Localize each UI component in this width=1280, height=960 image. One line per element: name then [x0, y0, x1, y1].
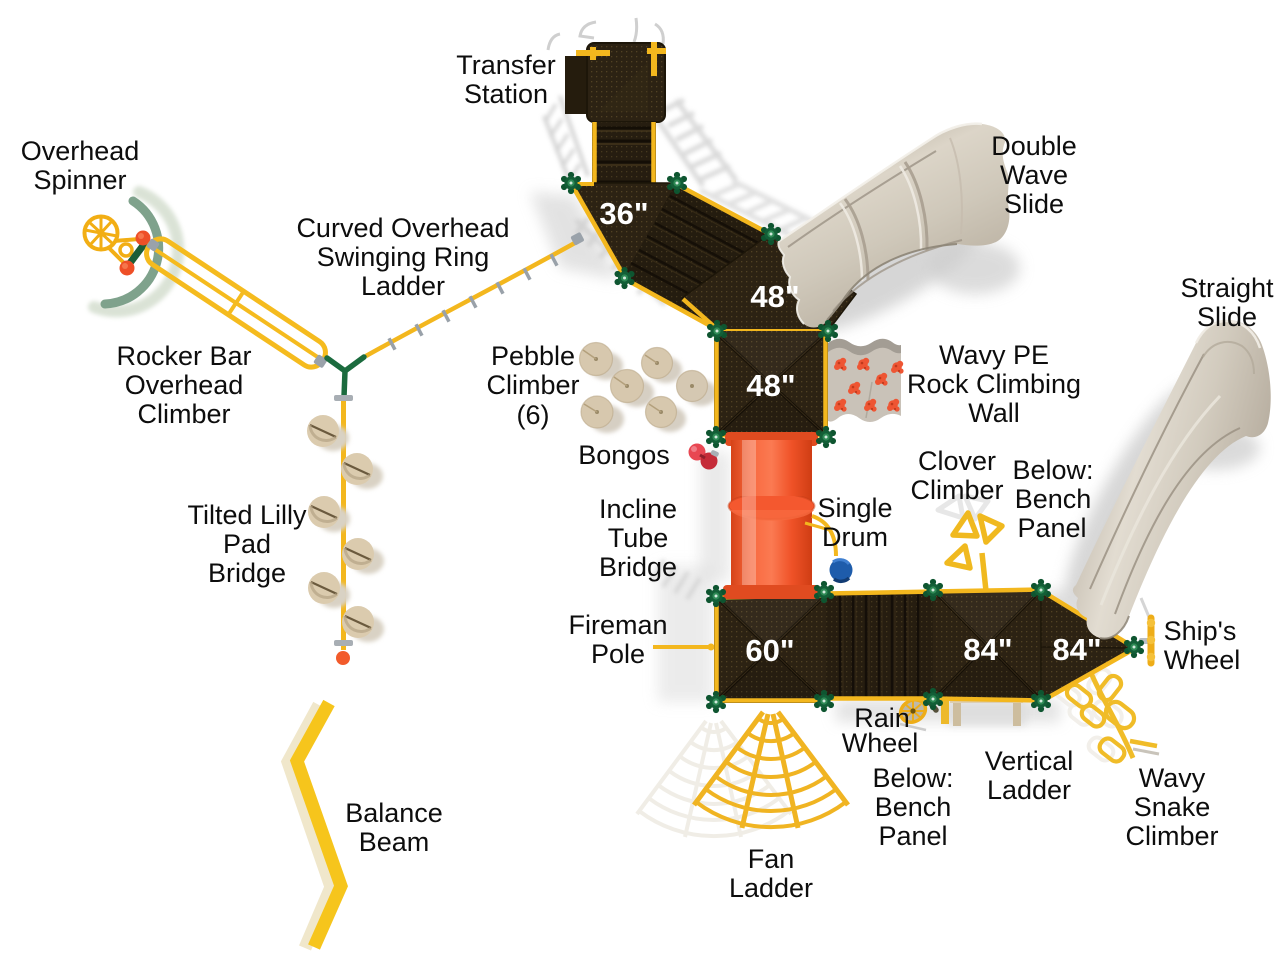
svg-text:Vertical: Vertical: [985, 746, 1074, 776]
svg-text:Wave: Wave: [1000, 160, 1068, 190]
svg-text:Rock Climbing: Rock Climbing: [907, 369, 1081, 399]
svg-text:84": 84": [963, 632, 1012, 667]
svg-text:Bongos: Bongos: [578, 440, 670, 470]
svg-text:Rocker Bar: Rocker Bar: [116, 341, 251, 371]
svg-text:Curved Overhead: Curved Overhead: [296, 213, 509, 243]
svg-text:Incline: Incline: [599, 494, 677, 524]
svg-text:Below:: Below:: [872, 763, 953, 793]
svg-text:Snake: Snake: [1134, 792, 1211, 822]
svg-text:Panel: Panel: [878, 821, 947, 851]
svg-text:36": 36": [599, 196, 648, 231]
svg-text:Climber: Climber: [486, 370, 579, 400]
svg-text:Bench: Bench: [875, 792, 952, 822]
svg-text:Beam: Beam: [359, 827, 430, 857]
svg-text:Transfer: Transfer: [456, 50, 556, 80]
svg-text:Bench: Bench: [1015, 484, 1092, 514]
svg-text:Climber: Climber: [910, 475, 1003, 505]
svg-text:Tilted Lilly: Tilted Lilly: [187, 500, 307, 530]
svg-text:Balance: Balance: [345, 798, 443, 828]
svg-text:Climber: Climber: [137, 399, 230, 429]
svg-text:Pole: Pole: [591, 639, 645, 669]
svg-text:Slide: Slide: [1197, 302, 1257, 332]
svg-text:Climber: Climber: [1125, 821, 1218, 851]
svg-text:Ladder: Ladder: [987, 775, 1071, 805]
svg-text:Ladder: Ladder: [729, 873, 813, 903]
svg-text:Double: Double: [991, 131, 1077, 161]
svg-text:Panel: Panel: [1017, 513, 1086, 543]
svg-text:Wavy PE: Wavy PE: [939, 340, 1049, 370]
svg-text:Ship's: Ship's: [1164, 616, 1237, 646]
svg-text:84": 84": [1052, 632, 1101, 667]
svg-text:Drum: Drum: [822, 522, 888, 552]
svg-text:Fireman: Fireman: [568, 610, 667, 640]
svg-text:Station: Station: [464, 79, 548, 109]
svg-text:Bridge: Bridge: [208, 558, 286, 588]
svg-text:Wall: Wall: [968, 398, 1020, 428]
svg-text:Wheel: Wheel: [1164, 645, 1241, 675]
svg-text:Slide: Slide: [1004, 189, 1064, 219]
svg-text:Ladder: Ladder: [361, 271, 445, 301]
svg-text:Pebble: Pebble: [491, 341, 575, 371]
svg-text:Wavy: Wavy: [1139, 763, 1206, 793]
svg-text:48": 48": [746, 368, 795, 403]
svg-text:Overhead: Overhead: [21, 136, 140, 166]
svg-text:(6): (6): [517, 400, 550, 430]
svg-text:Below:: Below:: [1012, 455, 1093, 485]
svg-text:Swinging Ring: Swinging Ring: [317, 242, 490, 272]
svg-text:Pad: Pad: [223, 529, 271, 559]
svg-text:Clover: Clover: [918, 446, 996, 476]
svg-text:Wheel: Wheel: [842, 728, 919, 758]
svg-text:Fan: Fan: [748, 844, 795, 874]
svg-text:Single: Single: [817, 493, 892, 523]
svg-text:Overhead: Overhead: [125, 370, 244, 400]
svg-text:Spinner: Spinner: [33, 165, 126, 195]
svg-text:Bridge: Bridge: [599, 552, 677, 582]
svg-text:60": 60": [745, 633, 794, 668]
svg-text:Straight: Straight: [1180, 273, 1274, 303]
svg-text:Tube: Tube: [608, 523, 669, 553]
svg-text:48": 48": [750, 279, 799, 314]
